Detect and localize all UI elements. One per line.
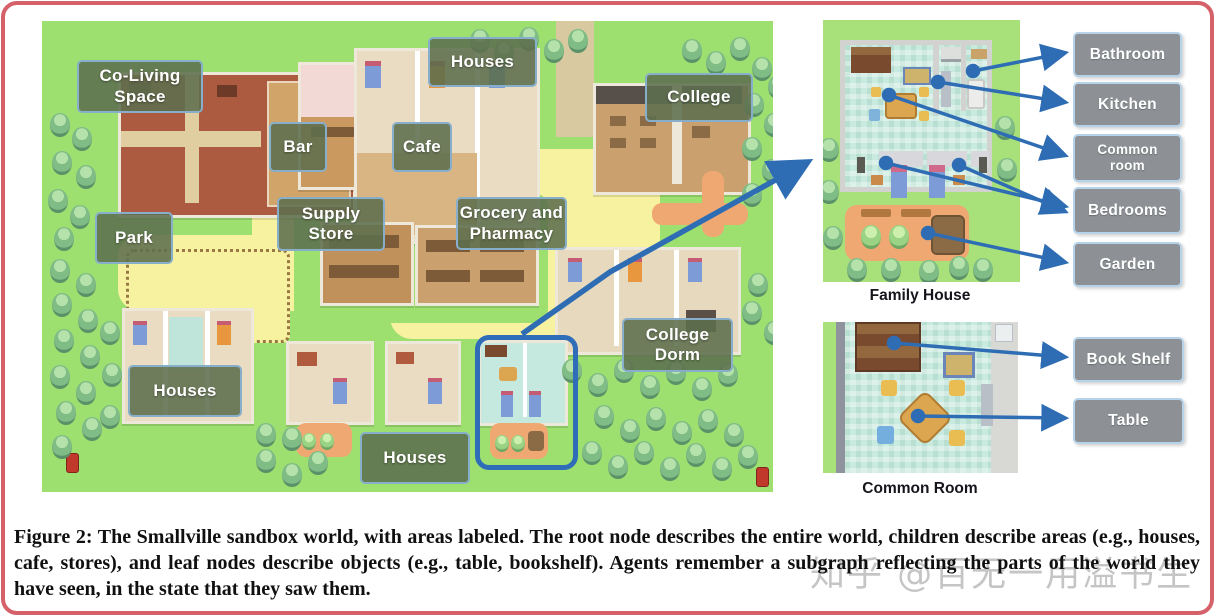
tree-icon	[76, 165, 96, 189]
garden-patch	[296, 423, 352, 457]
tree-icon	[76, 381, 96, 405]
map-label-cafe: Cafe	[392, 122, 452, 172]
farm-patch	[652, 203, 748, 225]
tree-icon	[594, 405, 614, 429]
tree-icon	[768, 75, 773, 99]
tree-icon	[50, 365, 70, 389]
figure-caption: Figure 2: The Smallville sandbox world, …	[14, 524, 1200, 602]
tree-icon	[762, 159, 773, 183]
tree-icon	[640, 375, 660, 399]
tree-icon	[712, 457, 732, 481]
common-room-caption: Common Room	[840, 480, 1000, 498]
tree-icon	[660, 457, 680, 481]
tree-icon	[52, 293, 72, 317]
tree-icon	[620, 419, 640, 443]
tree-icon	[308, 451, 328, 475]
tree-icon	[724, 423, 744, 447]
label-table: Table	[1073, 398, 1184, 444]
family-house-walls	[840, 40, 992, 192]
smallville-map: Co-Living Space Houses College Bar Cafe …	[42, 21, 773, 492]
tree-icon	[56, 401, 76, 425]
map-label-houses-bottom-mid: Houses	[360, 432, 470, 484]
label-bathroom: Bathroom	[1073, 32, 1182, 77]
tree-icon	[672, 421, 692, 445]
tree-icon	[256, 423, 276, 447]
tree-icon	[78, 309, 98, 333]
label-common-room: Common room	[1073, 134, 1182, 182]
family-house-caption: Family House	[840, 287, 1000, 305]
map-label-houses-top: Houses	[428, 37, 537, 87]
tree-icon	[544, 39, 564, 63]
tree-icon	[686, 443, 706, 467]
tree-icon	[748, 273, 768, 297]
tree-icon	[54, 329, 74, 353]
tree-icon	[48, 189, 68, 213]
family-garden	[845, 205, 969, 261]
tree-icon	[282, 427, 302, 451]
tree-icon	[50, 113, 70, 137]
common-room-inset	[823, 322, 1018, 473]
tree-icon	[764, 113, 773, 137]
label-garden: Garden	[1073, 242, 1182, 287]
label-kitchen: Kitchen	[1073, 82, 1182, 127]
family-house-highlight	[475, 335, 578, 470]
map-label-co-living-space: Co-Living Space	[77, 60, 203, 113]
tree-icon	[100, 405, 120, 429]
tree-icon	[682, 39, 702, 63]
tree-icon	[634, 441, 654, 465]
tree-icon	[742, 301, 762, 325]
figure-2: Co-Living Space Houses College Bar Cafe …	[0, 0, 1215, 616]
label-bedrooms: Bedrooms	[1073, 187, 1182, 234]
tree-icon	[764, 321, 773, 345]
tree-icon	[698, 409, 718, 433]
tree-icon	[52, 435, 72, 459]
map-label-houses-bottom-left: Houses	[128, 365, 242, 417]
tree-icon	[752, 57, 772, 81]
tree-icon	[256, 449, 276, 473]
tree-icon	[76, 273, 96, 297]
map-label-college: College	[645, 73, 753, 122]
map-label-bar: Bar	[269, 122, 327, 172]
tree-icon	[588, 373, 608, 397]
tree-icon	[568, 29, 588, 53]
tree-icon	[52, 151, 72, 175]
tree-icon	[582, 441, 602, 465]
tree-icon	[82, 417, 102, 441]
tree-icon	[742, 183, 762, 207]
tree-icon	[102, 363, 122, 387]
tree-icon	[742, 137, 762, 161]
tree-icon	[692, 377, 712, 401]
map-label-supply-store: Supply Store	[277, 197, 385, 251]
tree-icon	[730, 37, 750, 61]
tree-icon	[54, 227, 74, 251]
mailbox-icon	[756, 467, 769, 487]
tree-icon	[100, 321, 120, 345]
map-label-park: Park	[95, 212, 173, 264]
tree-icon	[80, 345, 100, 369]
tree-icon	[282, 463, 302, 487]
building-house-bm2	[385, 341, 461, 425]
family-house-inset	[823, 20, 1020, 282]
building-house-bm1	[286, 341, 374, 425]
tree-icon	[50, 259, 70, 283]
tree-icon	[70, 205, 90, 229]
tree-icon	[738, 445, 758, 469]
tree-icon	[608, 455, 628, 479]
label-book-shelf: Book Shelf	[1073, 337, 1184, 382]
map-label-grocery-pharmacy: Grocery and Pharmacy	[456, 197, 567, 250]
map-label-college-dorm: College Dorm	[622, 318, 733, 372]
tree-icon	[72, 127, 92, 151]
tree-icon	[646, 407, 666, 431]
tree-icon	[706, 51, 726, 75]
